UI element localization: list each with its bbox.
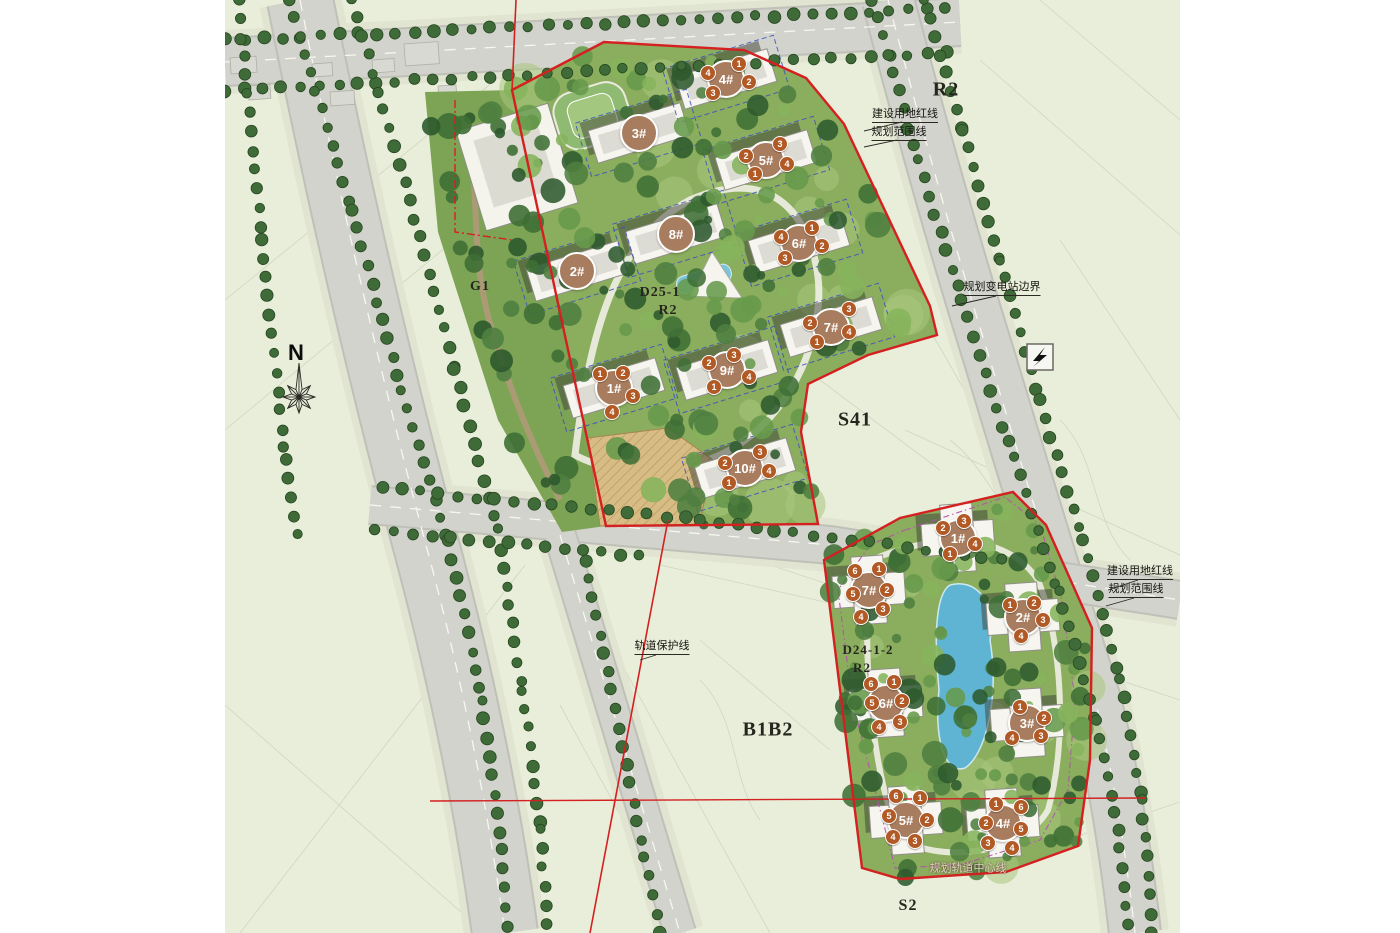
unit-marker-upper-9-4[interactable]: 4 — [741, 369, 757, 385]
site-plan: R2S41B1B2S2G1D25-1R2D24-1-2R2建设用地红线规划范围线… — [0, 0, 1400, 933]
unit-marker-upper-4-4[interactable]: 4 — [700, 65, 716, 81]
building-marker-upper-3[interactable]: 3# — [620, 114, 658, 152]
unit-marker-lower-7-1[interactable]: 1 — [871, 561, 887, 577]
unit-marker-upper-10-2[interactable]: 2 — [717, 455, 733, 471]
unit-marker-upper-4-1[interactable]: 1 — [731, 56, 747, 72]
unit-marker-upper-7-1[interactable]: 1 — [809, 334, 825, 350]
unit-marker-upper-10-3[interactable]: 3 — [752, 444, 768, 460]
unit-marker-lower-5-2[interactable]: 2 — [919, 812, 935, 828]
unit-marker-upper-4-2[interactable]: 2 — [741, 74, 757, 90]
unit-marker-lower-2-3[interactable]: 3 — [1035, 612, 1051, 628]
unit-marker-lower-2-4[interactable]: 4 — [1013, 628, 1029, 644]
unit-marker-upper-10-4[interactable]: 4 — [761, 463, 777, 479]
unit-marker-lower-3-1[interactable]: 1 — [1012, 699, 1028, 715]
unit-marker-lower-5-3[interactable]: 3 — [907, 833, 923, 849]
substation-icon — [1027, 344, 1053, 370]
unit-marker-upper-5-1[interactable]: 1 — [747, 166, 763, 182]
unit-marker-upper-7-2[interactable]: 2 — [802, 315, 818, 331]
unit-marker-lower-6-3[interactable]: 3 — [892, 714, 908, 730]
unit-marker-lower-6-5[interactable]: 5 — [864, 695, 880, 711]
unit-marker-upper-5-2[interactable]: 2 — [738, 148, 754, 164]
unit-marker-upper-6-4[interactable]: 4 — [773, 229, 789, 245]
unit-marker-lower-3-2[interactable]: 2 — [1036, 710, 1052, 726]
building-marker-upper-2[interactable]: 2# — [558, 252, 596, 290]
unit-marker-upper-1-4[interactable]: 4 — [604, 404, 620, 420]
building-marker-upper-8[interactable]: 8# — [657, 215, 695, 253]
unit-marker-lower-7-2[interactable]: 2 — [879, 582, 895, 598]
unit-marker-lower-1-4[interactable]: 4 — [967, 536, 983, 552]
unit-marker-upper-6-1[interactable]: 1 — [804, 220, 820, 236]
unit-marker-upper-1-3[interactable]: 3 — [625, 388, 641, 404]
unit-marker-lower-5-1[interactable]: 1 — [912, 790, 928, 806]
unit-marker-lower-2-1[interactable]: 1 — [1002, 597, 1018, 613]
unit-marker-upper-4-3[interactable]: 3 — [705, 85, 721, 101]
unit-marker-upper-9-2[interactable]: 2 — [701, 355, 717, 371]
unit-marker-lower-4-6[interactable]: 6 — [1013, 799, 1029, 815]
map-area — [218, 0, 1180, 933]
unit-marker-lower-1-3[interactable]: 3 — [956, 513, 972, 529]
unit-marker-lower-6-2[interactable]: 2 — [894, 693, 910, 709]
unit-marker-lower-7-3[interactable]: 3 — [875, 601, 891, 617]
unit-marker-upper-9-1[interactable]: 1 — [706, 379, 722, 395]
unit-marker-lower-6-6[interactable]: 6 — [863, 676, 879, 692]
unit-marker-lower-4-2[interactable]: 2 — [978, 815, 994, 831]
unit-marker-lower-6-1[interactable]: 1 — [886, 674, 902, 690]
unit-marker-upper-7-3[interactable]: 3 — [841, 301, 857, 317]
unit-marker-lower-3-3[interactable]: 3 — [1033, 728, 1049, 744]
unit-marker-upper-9-3[interactable]: 3 — [726, 347, 742, 363]
unit-marker-upper-7-4[interactable]: 4 — [841, 324, 857, 340]
unit-marker-lower-5-4[interactable]: 4 — [885, 829, 901, 845]
unit-marker-lower-4-1[interactable]: 1 — [988, 796, 1004, 812]
unit-marker-lower-3-4[interactable]: 4 — [1004, 730, 1020, 746]
unit-marker-lower-4-4[interactable]: 4 — [1004, 840, 1020, 856]
unit-marker-lower-7-5[interactable]: 5 — [845, 586, 861, 602]
unit-marker-lower-7-6[interactable]: 6 — [847, 563, 863, 579]
unit-marker-lower-1-1[interactable]: 1 — [942, 546, 958, 562]
unit-marker-lower-5-5[interactable]: 5 — [881, 808, 897, 824]
site-plan-canvas — [0, 0, 1400, 933]
unit-marker-lower-2-2[interactable]: 2 — [1026, 595, 1042, 611]
unit-marker-upper-5-3[interactable]: 3 — [772, 136, 788, 152]
unit-marker-lower-1-2[interactable]: 2 — [935, 520, 951, 536]
unit-marker-upper-1-1[interactable]: 1 — [592, 366, 608, 382]
unit-marker-lower-4-3[interactable]: 3 — [980, 835, 996, 851]
unit-marker-upper-6-2[interactable]: 2 — [814, 238, 830, 254]
unit-marker-lower-5-6[interactable]: 6 — [888, 788, 904, 804]
unit-marker-lower-7-4[interactable]: 4 — [853, 609, 869, 625]
unit-marker-upper-6-3[interactable]: 3 — [777, 250, 793, 266]
unit-marker-upper-1-2[interactable]: 2 — [615, 365, 631, 381]
unit-marker-lower-6-4[interactable]: 4 — [871, 719, 887, 735]
unit-marker-upper-5-4[interactable]: 4 — [779, 156, 795, 172]
unit-marker-upper-10-1[interactable]: 1 — [721, 475, 737, 491]
unit-marker-lower-4-5[interactable]: 5 — [1013, 821, 1029, 837]
